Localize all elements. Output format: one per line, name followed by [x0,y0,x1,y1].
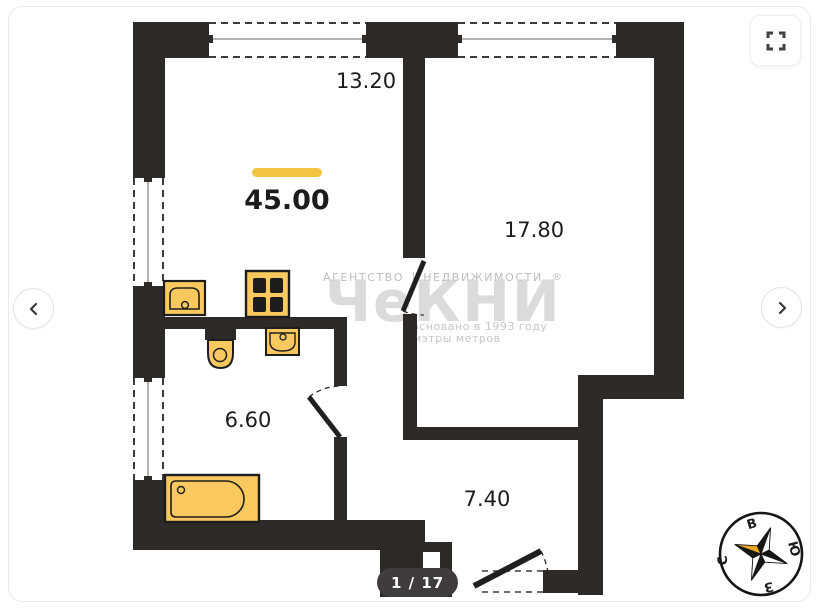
compass-rose: В Ю З С [716,513,803,595]
label-top-dimension: 13.20 [336,69,396,93]
bathtub [165,475,259,522]
fullscreen-expand-icon [765,30,787,52]
bath-sink [266,328,299,355]
fullscreen-button[interactable] [750,15,801,66]
page-indicator-badge: 1 / 17 [377,568,458,597]
page-indicator-text: 1 / 17 [391,574,444,592]
stove [246,271,289,317]
label-hallway: 7.40 [464,487,511,511]
prev-photo-button[interactable] [13,288,54,329]
label-room-bath: 6.60 [225,408,272,432]
door-entrance [474,551,549,592]
chevron-right-icon [774,300,790,316]
kitchen-sink [164,281,205,315]
chevron-left-icon [26,301,42,317]
fixtures [164,271,299,522]
compass-letter-left: С [716,555,732,566]
toilet [205,326,236,368]
label-total-area: 45.00 [244,185,329,216]
total-area-accent-bar [252,168,322,177]
door-bathroom [309,386,340,437]
label-room-large: 17.80 [504,218,564,242]
floor-plan: 45.00 13.20 17.80 6.60 7.40 В Ю З С [0,0,819,608]
door-bedroom [403,261,424,315]
next-photo-button[interactable] [761,287,802,328]
